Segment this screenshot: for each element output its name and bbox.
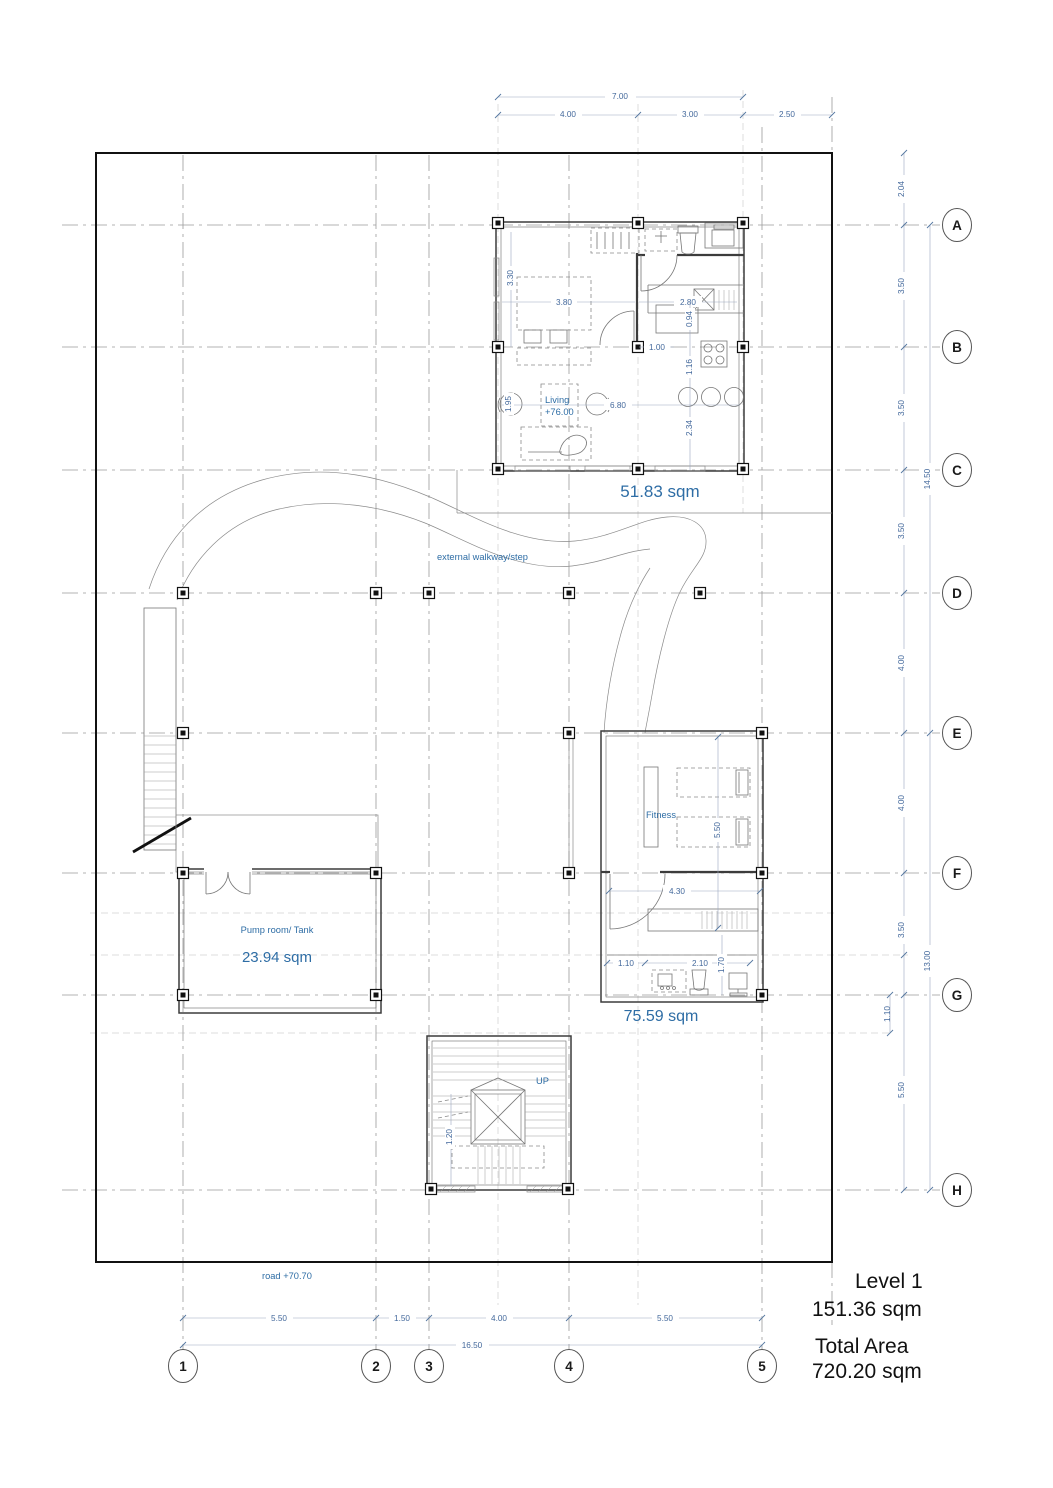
- dim-fitness: 2.10: [692, 959, 708, 968]
- fitness-room-name: Fitness: [646, 810, 676, 820]
- dim-right-seg: 3.50: [897, 523, 906, 539]
- window-sill: [437, 1186, 563, 1192]
- title-block: Level 1 151.36 sqm Total Area 720.20 sqm: [812, 1270, 923, 1383]
- dim-right-total: 14.50: [923, 468, 932, 489]
- dim-right-total: 13.00: [923, 950, 932, 971]
- dim-bottom-seg: 5.50: [271, 1314, 287, 1323]
- dim-right-seg: 3.50: [897, 922, 906, 938]
- dim-bottom-overall: 16.50: [462, 1341, 483, 1350]
- walkway-label: external walkway/step: [437, 552, 528, 562]
- grid-col-label: 1: [179, 1359, 187, 1374]
- stair-block: [427, 1036, 571, 1192]
- dim-living: 3.80: [556, 298, 572, 307]
- living-room-name: Living: [545, 395, 569, 405]
- top-dimensions: 7.00 4.00 3.00 2.50: [495, 90, 835, 119]
- living-room-elevation: +76.00: [545, 407, 574, 417]
- grid-row-label: A: [952, 218, 962, 233]
- dim-top-seg: 3.00: [682, 110, 698, 119]
- sofa: [521, 427, 591, 460]
- pump-room-name: Pump room/ Tank: [241, 925, 314, 935]
- grid-row-bubbles: A B C D E F G H: [943, 209, 972, 1207]
- grid-col-label: 5: [758, 1359, 766, 1374]
- fitness-area-label: 75.59 sqm: [624, 1008, 699, 1025]
- dim-top-seg: 4.00: [560, 110, 576, 119]
- dim-fitness: 4.30: [669, 887, 685, 896]
- grid-row-label: G: [952, 988, 963, 1003]
- dim-bottom-seg: 1.50: [394, 1314, 410, 1323]
- dim-living: 2.80: [680, 298, 696, 307]
- pump-room: [179, 865, 381, 1013]
- dim-bottom-seg: 5.50: [657, 1314, 673, 1323]
- grid-col-label: 2: [372, 1359, 380, 1374]
- bathroom-door: [641, 255, 677, 291]
- level-area: 151.36 sqm: [812, 1298, 922, 1321]
- window-marks: [494, 258, 705, 471]
- deck: [176, 815, 378, 872]
- bathroom-sink: [645, 229, 677, 251]
- floor-plan-sheet: 7.00 4.00 3.00 2.50 2.04 3.50 3.50 3.50 …: [0, 0, 1053, 1488]
- fitness-block: [569, 731, 763, 1002]
- level-label: Level 1: [855, 1270, 923, 1293]
- dim-right-seg: 2.04: [897, 181, 906, 197]
- dim-stair: 1.20: [445, 1129, 454, 1145]
- dim-living: 2.34: [685, 420, 694, 436]
- dim-right-seg: 5.50: [897, 1082, 906, 1098]
- grid-col-label: 4: [565, 1359, 573, 1374]
- bar-stools: [679, 388, 744, 407]
- total-area-label: Total Area: [815, 1335, 909, 1358]
- treadmill: [677, 768, 750, 797]
- bath-counter: [648, 909, 758, 931]
- bench: [644, 767, 658, 847]
- dim-right-seg: 3.50: [897, 278, 906, 294]
- bath-toilet: [690, 970, 708, 995]
- room-labels: Living +76.00 51.83 sqm external walkway…: [241, 395, 700, 1281]
- bed: [517, 277, 591, 365]
- grid-row-label: D: [952, 586, 962, 601]
- dim-living: 6.80: [610, 401, 626, 410]
- dim-living: 1.16: [685, 359, 694, 375]
- living-unit: [494, 222, 744, 471]
- dim-right-seg: 3.50: [897, 400, 906, 416]
- dim-living: 1.00: [649, 343, 665, 352]
- plot-boundary: [96, 153, 832, 1262]
- dim-living: 0.94: [685, 311, 694, 327]
- grid-row-label: E: [952, 726, 961, 741]
- dim-living: 1.95: [504, 396, 513, 412]
- living-dimensions: 3.30 3.80 2.80 0.94 1.00 1.16 2.34 6.80 …: [502, 232, 740, 470]
- bath-vanity: [652, 970, 686, 992]
- dim-top-seg: 2.50: [779, 110, 795, 119]
- living-area-label: 51.83 sqm: [620, 482, 699, 501]
- dim-top-overall: 7.00: [612, 92, 628, 101]
- dim-fitness: 1.10: [618, 959, 634, 968]
- grid-col-bubbles: 1 2 3 4 5: [169, 1350, 777, 1383]
- dim-bottom-seg: 4.00: [491, 1314, 507, 1323]
- grid-row-label: F: [953, 866, 961, 881]
- grid-row-label: C: [952, 463, 962, 478]
- wardrobe: [591, 228, 639, 253]
- stove: [701, 341, 727, 367]
- dim-right-seg: 4.00: [897, 655, 906, 671]
- grid-row-label: B: [952, 340, 962, 355]
- kitchen-counter: [648, 285, 744, 333]
- stair-dimension: 1.20: [445, 1094, 455, 1186]
- bottom-dimensions: 5.50 1.50 4.00 5.50 16.50: [180, 1312, 765, 1350]
- stair-up-label: UP: [536, 1076, 549, 1086]
- pump-area-label: 23.94 sqm: [242, 949, 312, 966]
- grid-row-label: H: [952, 1183, 962, 1198]
- dim-right-seg: 1.10: [883, 1006, 892, 1022]
- dim-right-seg: 4.00: [897, 795, 906, 811]
- living-door: [600, 311, 634, 345]
- side-table: [729, 973, 747, 996]
- external-walkway: [149, 472, 706, 733]
- grid-col-label: 3: [425, 1359, 433, 1374]
- bath-door: [610, 874, 665, 929]
- dim-living: 3.30: [506, 270, 515, 286]
- road-label: road +70.70: [262, 1271, 312, 1281]
- total-area-value: 720.20 sqm: [812, 1360, 922, 1383]
- dim-fitness: 5.50: [713, 822, 722, 838]
- toilet: [678, 226, 698, 254]
- dim-fitness: 1.70: [717, 957, 726, 973]
- section-break-mark: [133, 818, 191, 852]
- right-dimensions: 2.04 3.50 3.50 3.50 4.00 4.00 3.50 1.10 …: [883, 150, 935, 1193]
